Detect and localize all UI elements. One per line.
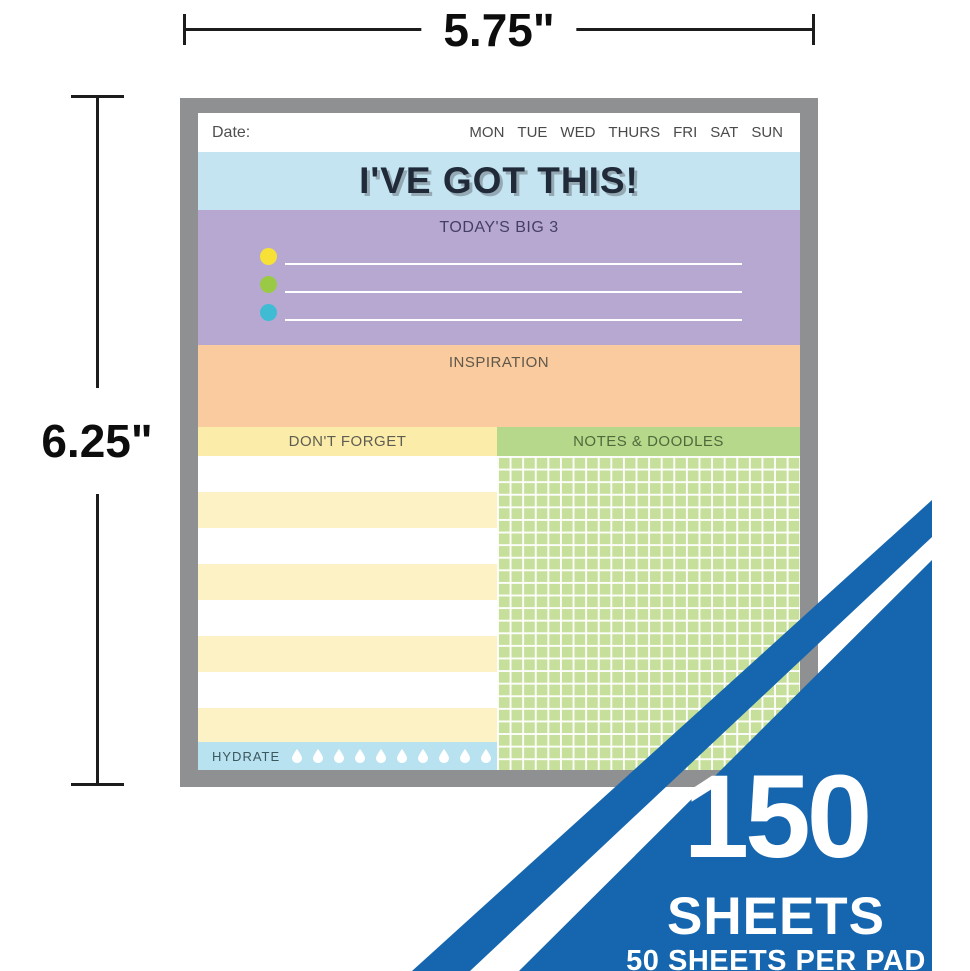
product-image: 5.75" 6.25" Date: MONTUEWEDTHURSFRISATSU… — [0, 0, 970, 971]
sheet-count-unit: SHEETS — [620, 890, 932, 943]
sheets-per-pad-label: 50 SHEETS PER PAD — [620, 947, 932, 971]
sheet-count-value: 150 — [620, 758, 932, 876]
